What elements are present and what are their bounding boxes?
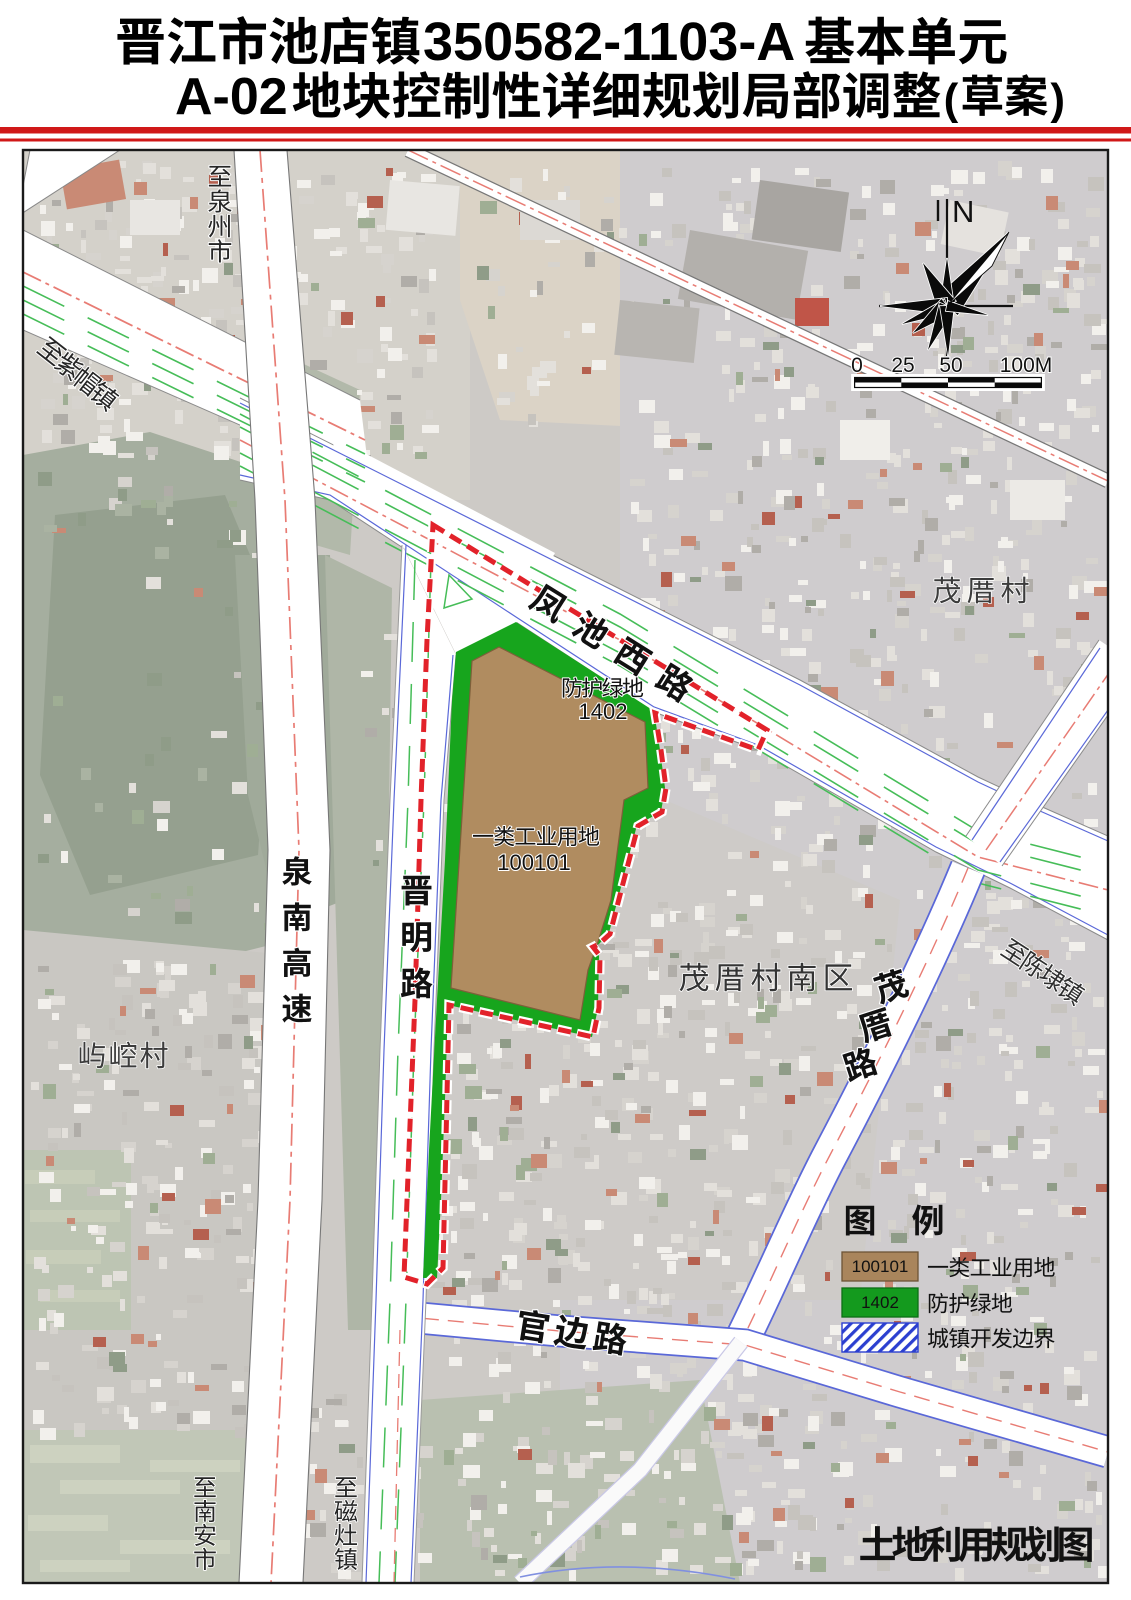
svg-text:0: 0 [851,354,863,377]
svg-text:50: 50 [939,354,962,377]
svg-text:350582-1103-A: 350582-1103-A [423,12,795,72]
svg-text:(: ( [944,75,959,124]
svg-text:100101: 100101 [497,850,570,875]
svg-text:1402: 1402 [579,699,628,724]
svg-text:100M: 100M [1000,354,1053,377]
svg-text:1402: 1402 [861,1293,899,1312]
svg-text:A-02: A-02 [175,68,288,126]
svg-text:100101: 100101 [852,1257,909,1276]
svg-text:25: 25 [891,354,914,377]
svg-text:): ) [1050,75,1065,124]
svg-text:N: N [952,194,974,229]
